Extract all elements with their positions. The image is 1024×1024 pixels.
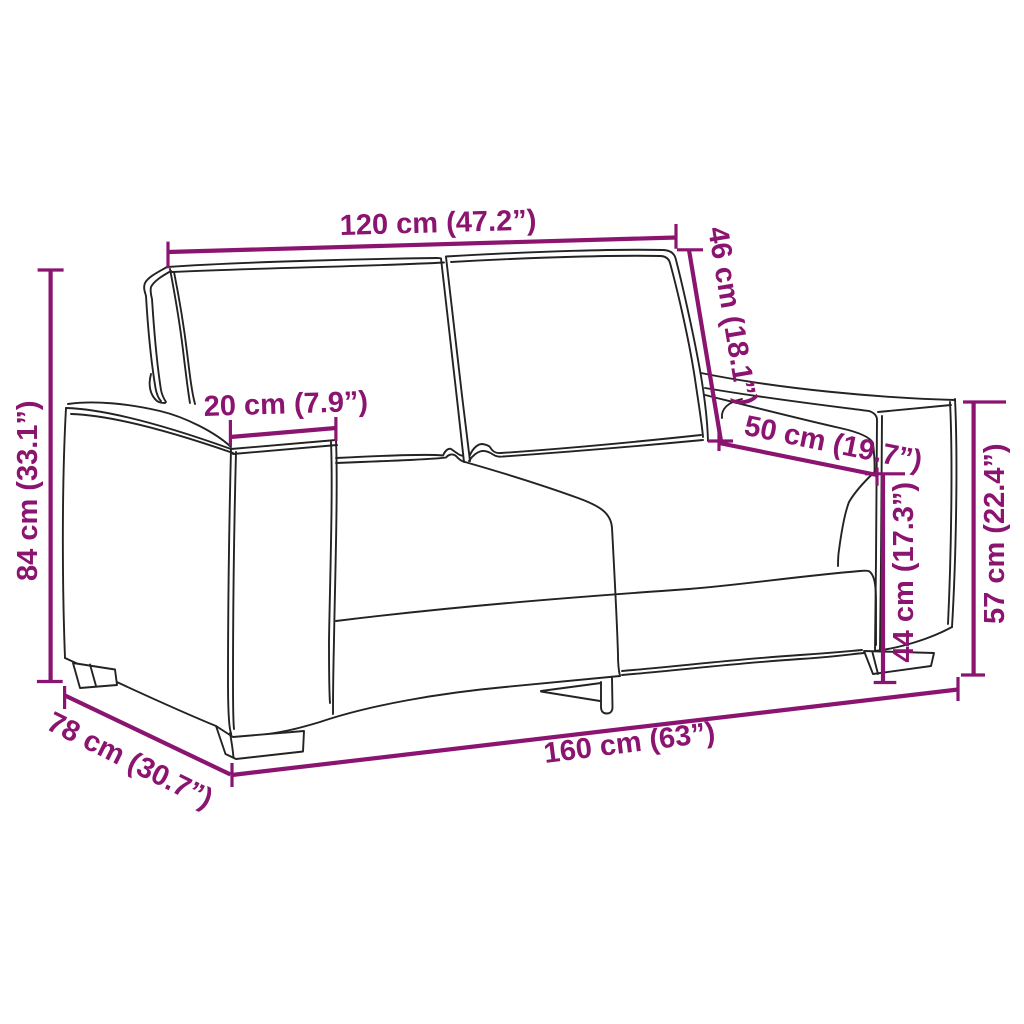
svg-text:120 cm (47.2”): 120 cm (47.2”) [339,205,536,242]
svg-text:20 cm (7.9”): 20 cm (7.9”) [203,386,368,423]
svg-text:57 cm (22.4”): 57 cm (22.4”) [979,443,1011,624]
svg-text:44 cm (17.3”): 44 cm (17.3”) [888,482,920,663]
svg-text:160 cm (63”): 160 cm (63”) [542,717,717,770]
svg-text:84 cm (33.1”): 84 cm (33.1”) [12,400,44,581]
svg-text:78 cm (30.7”): 78 cm (30.7”) [42,706,218,815]
